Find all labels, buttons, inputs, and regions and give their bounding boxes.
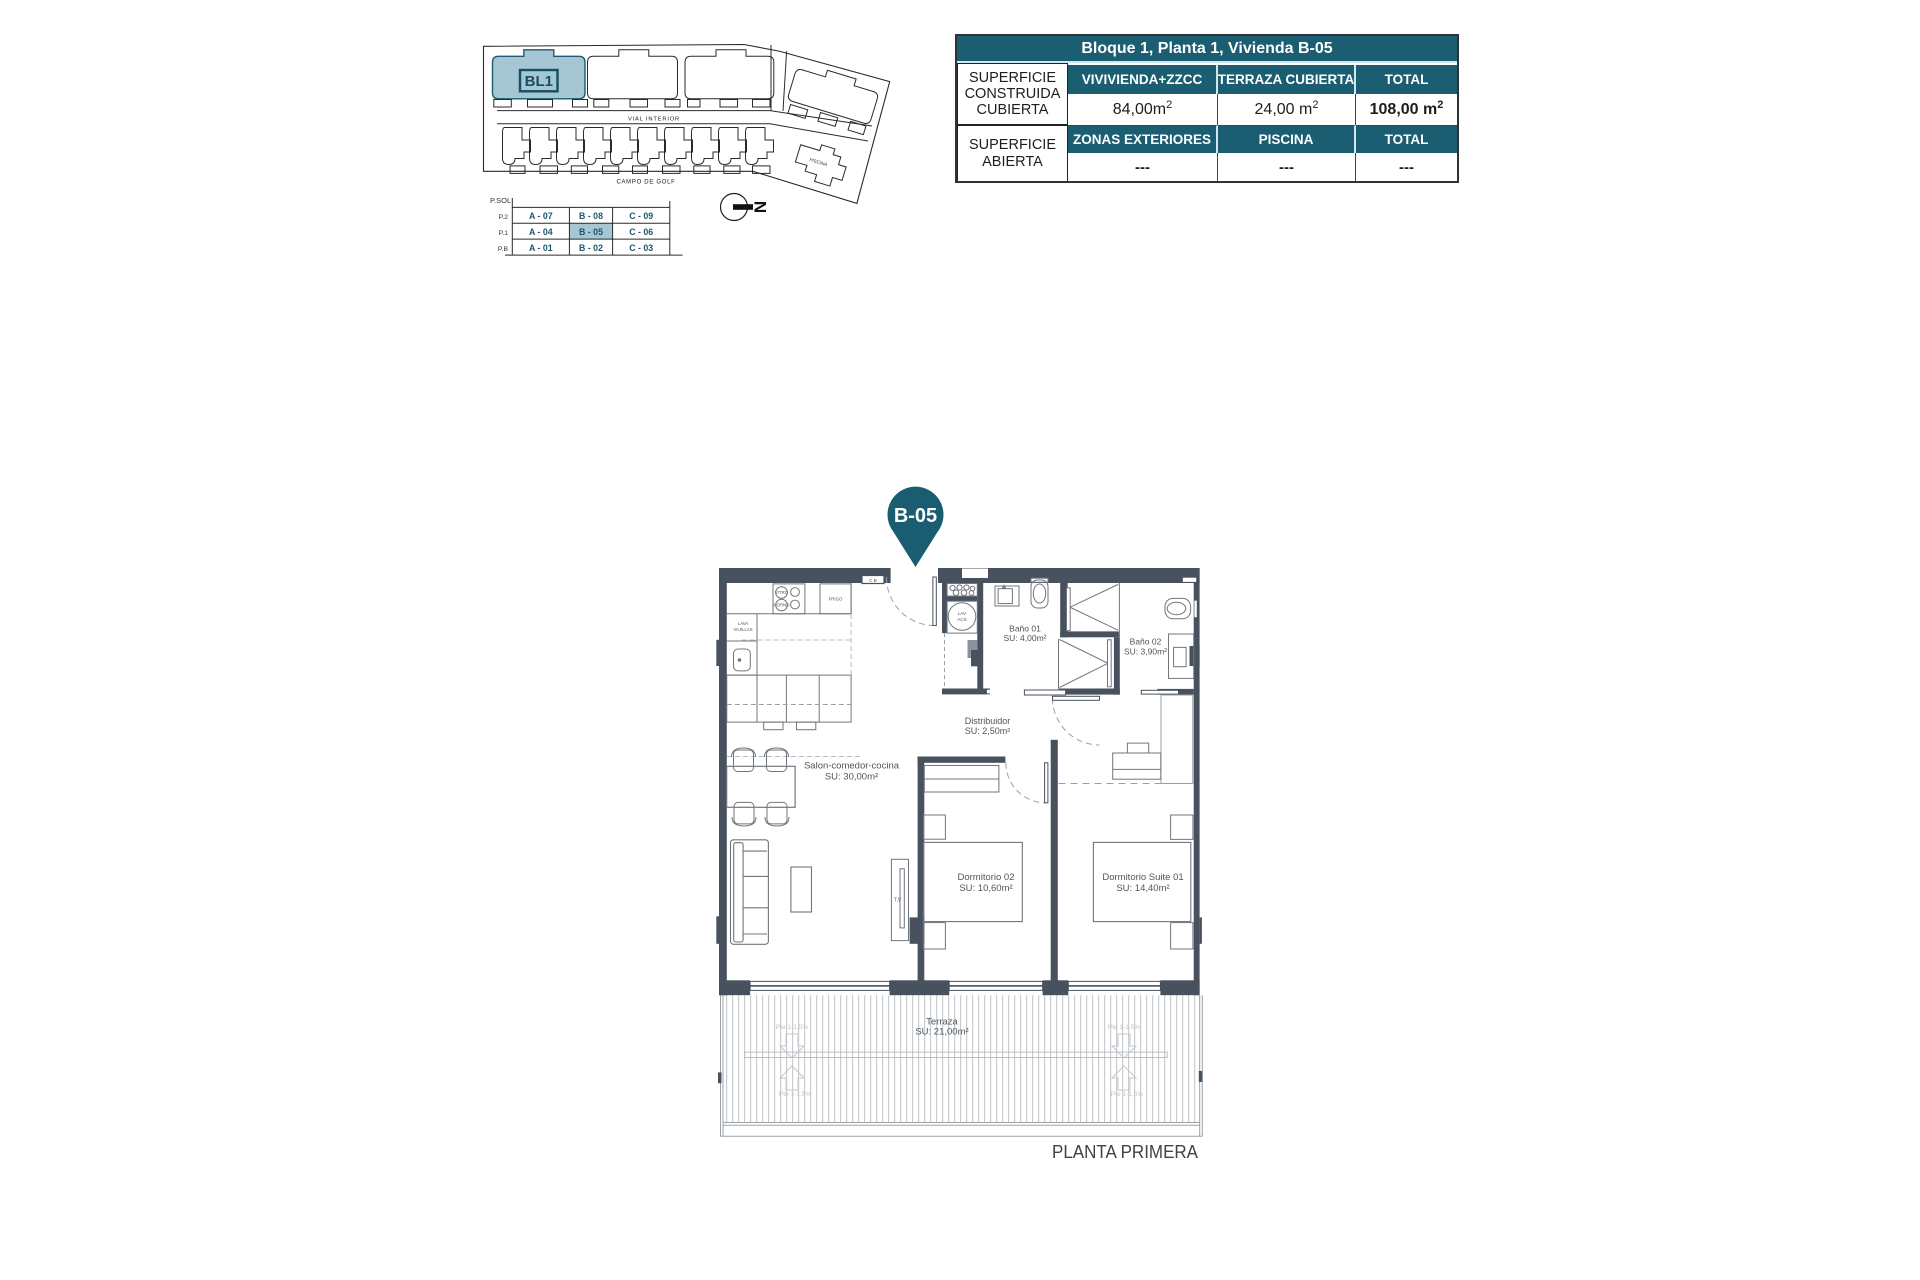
svg-text:B - 08: B - 08: [579, 211, 603, 221]
svg-text:A - 07: A - 07: [529, 211, 553, 221]
svg-text:T.V: T.V: [894, 898, 902, 904]
svg-text:SU: 21,00m²: SU: 21,00m²: [915, 1027, 968, 1038]
svg-text:B - 05: B - 05: [579, 227, 603, 237]
svg-text:C B: C B: [869, 578, 877, 583]
svg-text:LAV: LAV: [958, 611, 966, 616]
svg-text:P.2: P.2: [499, 214, 509, 221]
svg-text:C - 03: C - 03: [629, 243, 653, 253]
svg-text:VIAL INTERIOR: VIAL INTERIOR: [628, 117, 680, 123]
svg-text:SU: 2,50m²: SU: 2,50m²: [965, 726, 1011, 736]
svg-text:B-05: B-05: [894, 505, 937, 527]
svg-text:SU: 4,00m²: SU: 4,00m²: [1004, 633, 1047, 643]
svg-text:SU: 30,00m²: SU: 30,00m²: [825, 772, 878, 783]
svg-text:Pte 1-1,5%: Pte 1-1,5%: [776, 1024, 808, 1031]
svg-text:LAVA: LAVA: [738, 621, 748, 626]
svg-text:C - 06: C - 06: [629, 227, 653, 237]
svg-text:Pte 1-1,5%: Pte 1-1,5%: [1108, 1024, 1140, 1031]
svg-text:Dormitorio 02: Dormitorio 02: [957, 872, 1014, 883]
svg-text:HORNO: HORNO: [774, 603, 791, 608]
svg-text:VITRO: VITRO: [775, 590, 789, 595]
svg-text:Pte 1-1,5%: Pte 1-1,5%: [779, 1091, 811, 1098]
svg-text:C - 09: C - 09: [629, 211, 653, 221]
svg-text:SU: 10,60m²: SU: 10,60m²: [959, 883, 1012, 894]
svg-text:P.1: P.1: [499, 230, 509, 237]
svg-text:A - 04: A - 04: [529, 227, 553, 237]
svg-text:Baño 02: Baño 02: [1130, 637, 1162, 647]
svg-text:SU: 3,90m²: SU: 3,90m²: [1124, 647, 1167, 657]
svg-text:CAMPO DE GOLF: CAMPO DE GOLF: [616, 180, 675, 186]
svg-text:PISCINA: PISCINA: [809, 157, 829, 167]
svg-text:Distribuidor: Distribuidor: [965, 716, 1011, 726]
svg-text:PLANTA PRIMERA: PLANTA PRIMERA: [1052, 1141, 1199, 1162]
svg-text:A - 01: A - 01: [529, 243, 553, 253]
svg-text:Pte 1-1,5%: Pte 1-1,5%: [1111, 1091, 1143, 1098]
svg-text:VAJILLAS: VAJILLAS: [733, 627, 752, 632]
svg-text:FRIGO: FRIGO: [829, 597, 843, 602]
svg-text:B - 02: B - 02: [579, 243, 603, 253]
svg-text:ACS: ACS: [957, 617, 966, 622]
svg-text:N: N: [751, 201, 770, 213]
svg-text:SU: 14,40m²: SU: 14,40m²: [1116, 883, 1169, 894]
svg-text:P.SOL: P.SOL: [490, 196, 511, 205]
svg-text:Dormitorio Suite 01: Dormitorio Suite 01: [1102, 872, 1183, 883]
svg-text:BL1: BL1: [525, 73, 553, 90]
svg-text:P.B: P.B: [498, 246, 509, 253]
svg-text:Baño 01: Baño 01: [1009, 624, 1041, 634]
svg-text:Salon-comedor-cocina: Salon-comedor-cocina: [804, 761, 900, 772]
